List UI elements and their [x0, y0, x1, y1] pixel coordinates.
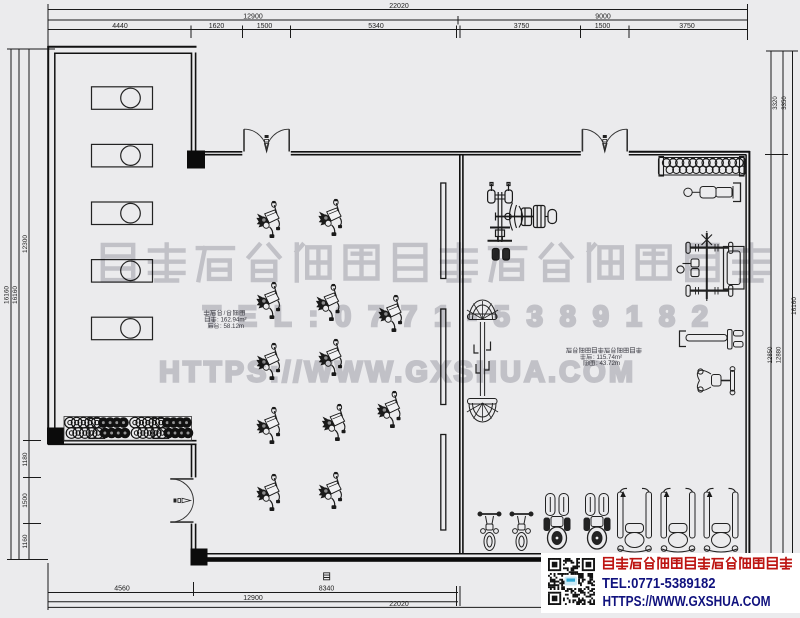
svg-text:3750: 3750 [679, 23, 695, 30]
svg-text:12300: 12300 [22, 235, 29, 253]
svg-text:HTTPS://WWW.GXSHUA.COM: HTTPS://WWW.GXSHUA.COM [603, 594, 771, 610]
svg-text:16160: 16160 [12, 286, 19, 304]
svg-text:TEL:0771-5389182: TEL:0771-5389182 [602, 576, 716, 592]
svg-text:8340: 8340 [319, 586, 335, 593]
svg-text:3350: 3350 [782, 96, 788, 110]
svg-text:9000: 9000 [595, 14, 611, 21]
svg-text:3750: 3750 [514, 23, 530, 30]
svg-text:1180: 1180 [22, 452, 29, 466]
svg-text:12900: 12900 [243, 595, 263, 602]
svg-text:1500: 1500 [257, 23, 273, 30]
svg-text:16160: 16160 [791, 297, 798, 315]
svg-text:HTTPS://WWW.GXSHUA.COM: HTTPS://WWW.GXSHUA.COM [159, 357, 633, 389]
svg-text:1620: 1620 [209, 23, 225, 30]
svg-text:4440: 4440 [112, 23, 128, 30]
svg-text:22020: 22020 [389, 601, 409, 608]
svg-text:1160: 1160 [22, 534, 29, 548]
svg-text:4560: 4560 [114, 586, 130, 593]
svg-text:12850: 12850 [768, 346, 774, 363]
svg-text:5340: 5340 [368, 23, 384, 30]
svg-text:1500: 1500 [595, 23, 611, 30]
svg-text:3320: 3320 [773, 96, 779, 110]
svg-text:22020: 22020 [389, 3, 409, 10]
svg-text:12880: 12880 [777, 346, 783, 363]
svg-text:12900: 12900 [243, 14, 263, 21]
svg-text:16160: 16160 [4, 286, 11, 304]
svg-text:1500: 1500 [22, 493, 29, 508]
